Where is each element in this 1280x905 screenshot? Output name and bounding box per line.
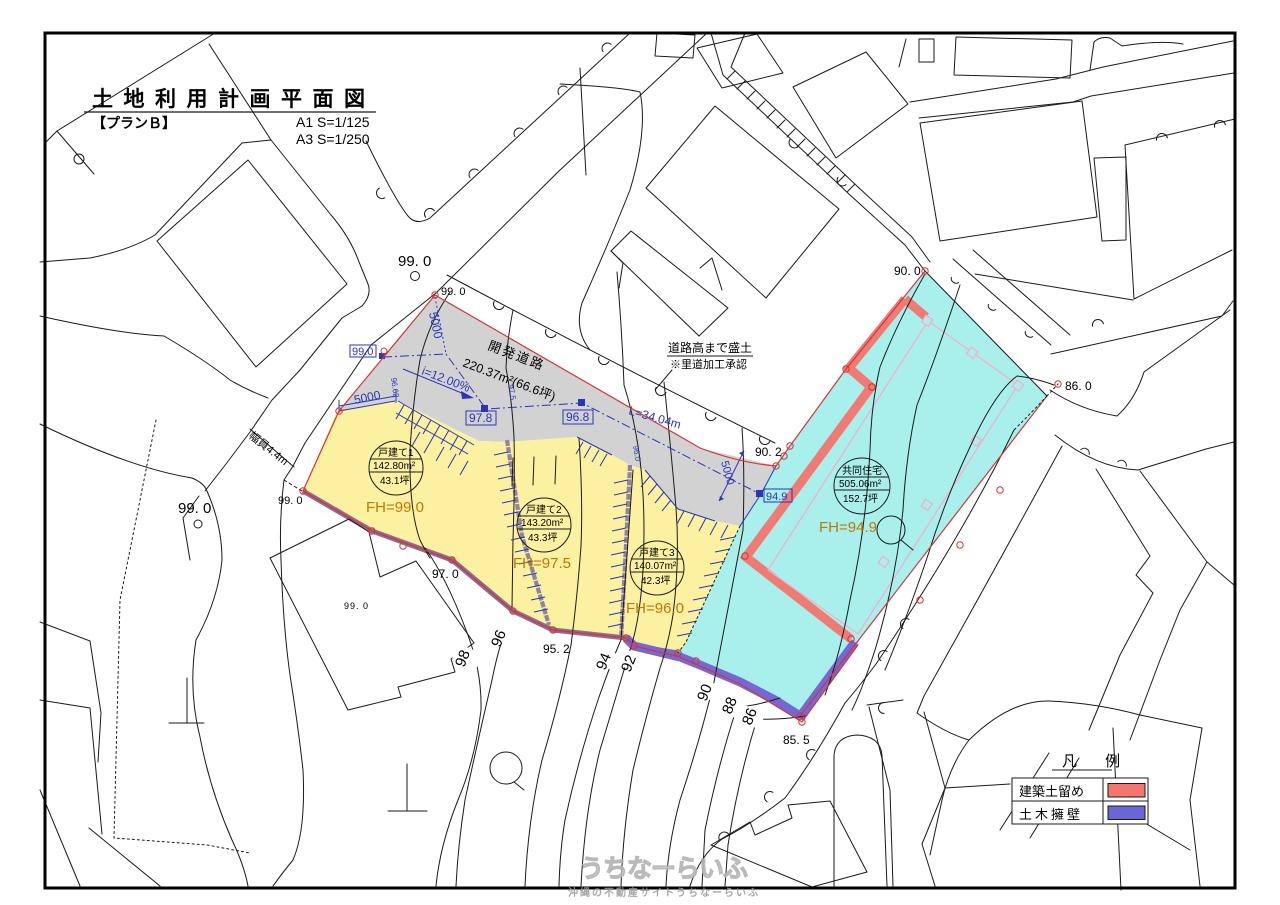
svg-text:凡 例: 凡 例 [1062,753,1132,770]
svg-text:土地利用計画平面図: 土地利用計画平面図 [92,87,376,111]
svg-text:152.7坪: 152.7坪 [843,492,878,505]
svg-text:沖縄の不動産サイトうちなーらいふ: 沖縄の不動産サイトうちなーらいふ [568,886,760,899]
svg-text:99. 0: 99. 0 [344,601,369,611]
svg-text:90. 2: 90. 2 [755,445,782,459]
svg-text:道路高まで盛土: 道路高まで盛土 [668,340,752,355]
svg-text:143.20m²: 143.20m² [521,518,564,529]
svg-text:うちなーらいふ: うちなーらいふ [579,855,748,883]
svg-text:土木擁壁: 土木擁壁 [1019,807,1083,822]
svg-text:※里道加工承認: ※里道加工承認 [670,357,747,371]
svg-text:43.1坪: 43.1坪 [380,474,409,487]
svg-text:建築土留め: 建築土留め [1019,784,1084,799]
svg-text:85. 5: 85. 5 [783,733,810,747]
svg-text:97.8: 97.8 [469,411,493,425]
svg-text:96.8: 96.8 [566,410,590,424]
svg-text:戸建て3: 戸建て3 [639,546,675,559]
svg-text:505.06m²: 505.06m² [839,479,882,490]
svg-text:戸建て2: 戸建て2 [526,503,562,516]
svg-text:FH=99.0: FH=99.0 [366,499,424,516]
svg-text:FH=96.0: FH=96.0 [626,600,684,617]
svg-text:99. 0: 99. 0 [441,286,465,298]
svg-text:90. 0: 90. 0 [894,264,921,278]
svg-text:【プランＢ】: 【プランＢ】 [92,115,176,131]
svg-text:戸建て1: 戸建て1 [378,446,414,459]
svg-text:99. 0: 99. 0 [398,253,431,270]
svg-text:95. 2: 95. 2 [543,642,570,656]
svg-text:86. 0: 86. 0 [1065,379,1092,393]
svg-text:共同住宅: 共同住宅 [842,464,882,477]
svg-text:99. 0: 99. 0 [278,495,302,507]
svg-text:142.80m²: 142.80m² [373,461,416,472]
svg-text:42.3坪: 42.3坪 [641,574,670,587]
svg-text:A3 S=1/250: A3 S=1/250 [296,131,370,147]
svg-text:43.3坪: 43.3坪 [528,531,557,544]
svg-text:99.0: 99.0 [352,346,373,358]
svg-text:99. 0: 99. 0 [178,500,211,517]
svg-text:FH=97.5: FH=97.5 [513,555,571,572]
svg-text:140.07m²: 140.07m² [634,561,677,572]
svg-text:94.9: 94.9 [766,491,787,503]
svg-text:FH=94.9: FH=94.9 [819,519,877,536]
svg-text:A1 S=1/125: A1 S=1/125 [296,114,370,130]
svg-text:97. 0: 97. 0 [432,567,459,581]
